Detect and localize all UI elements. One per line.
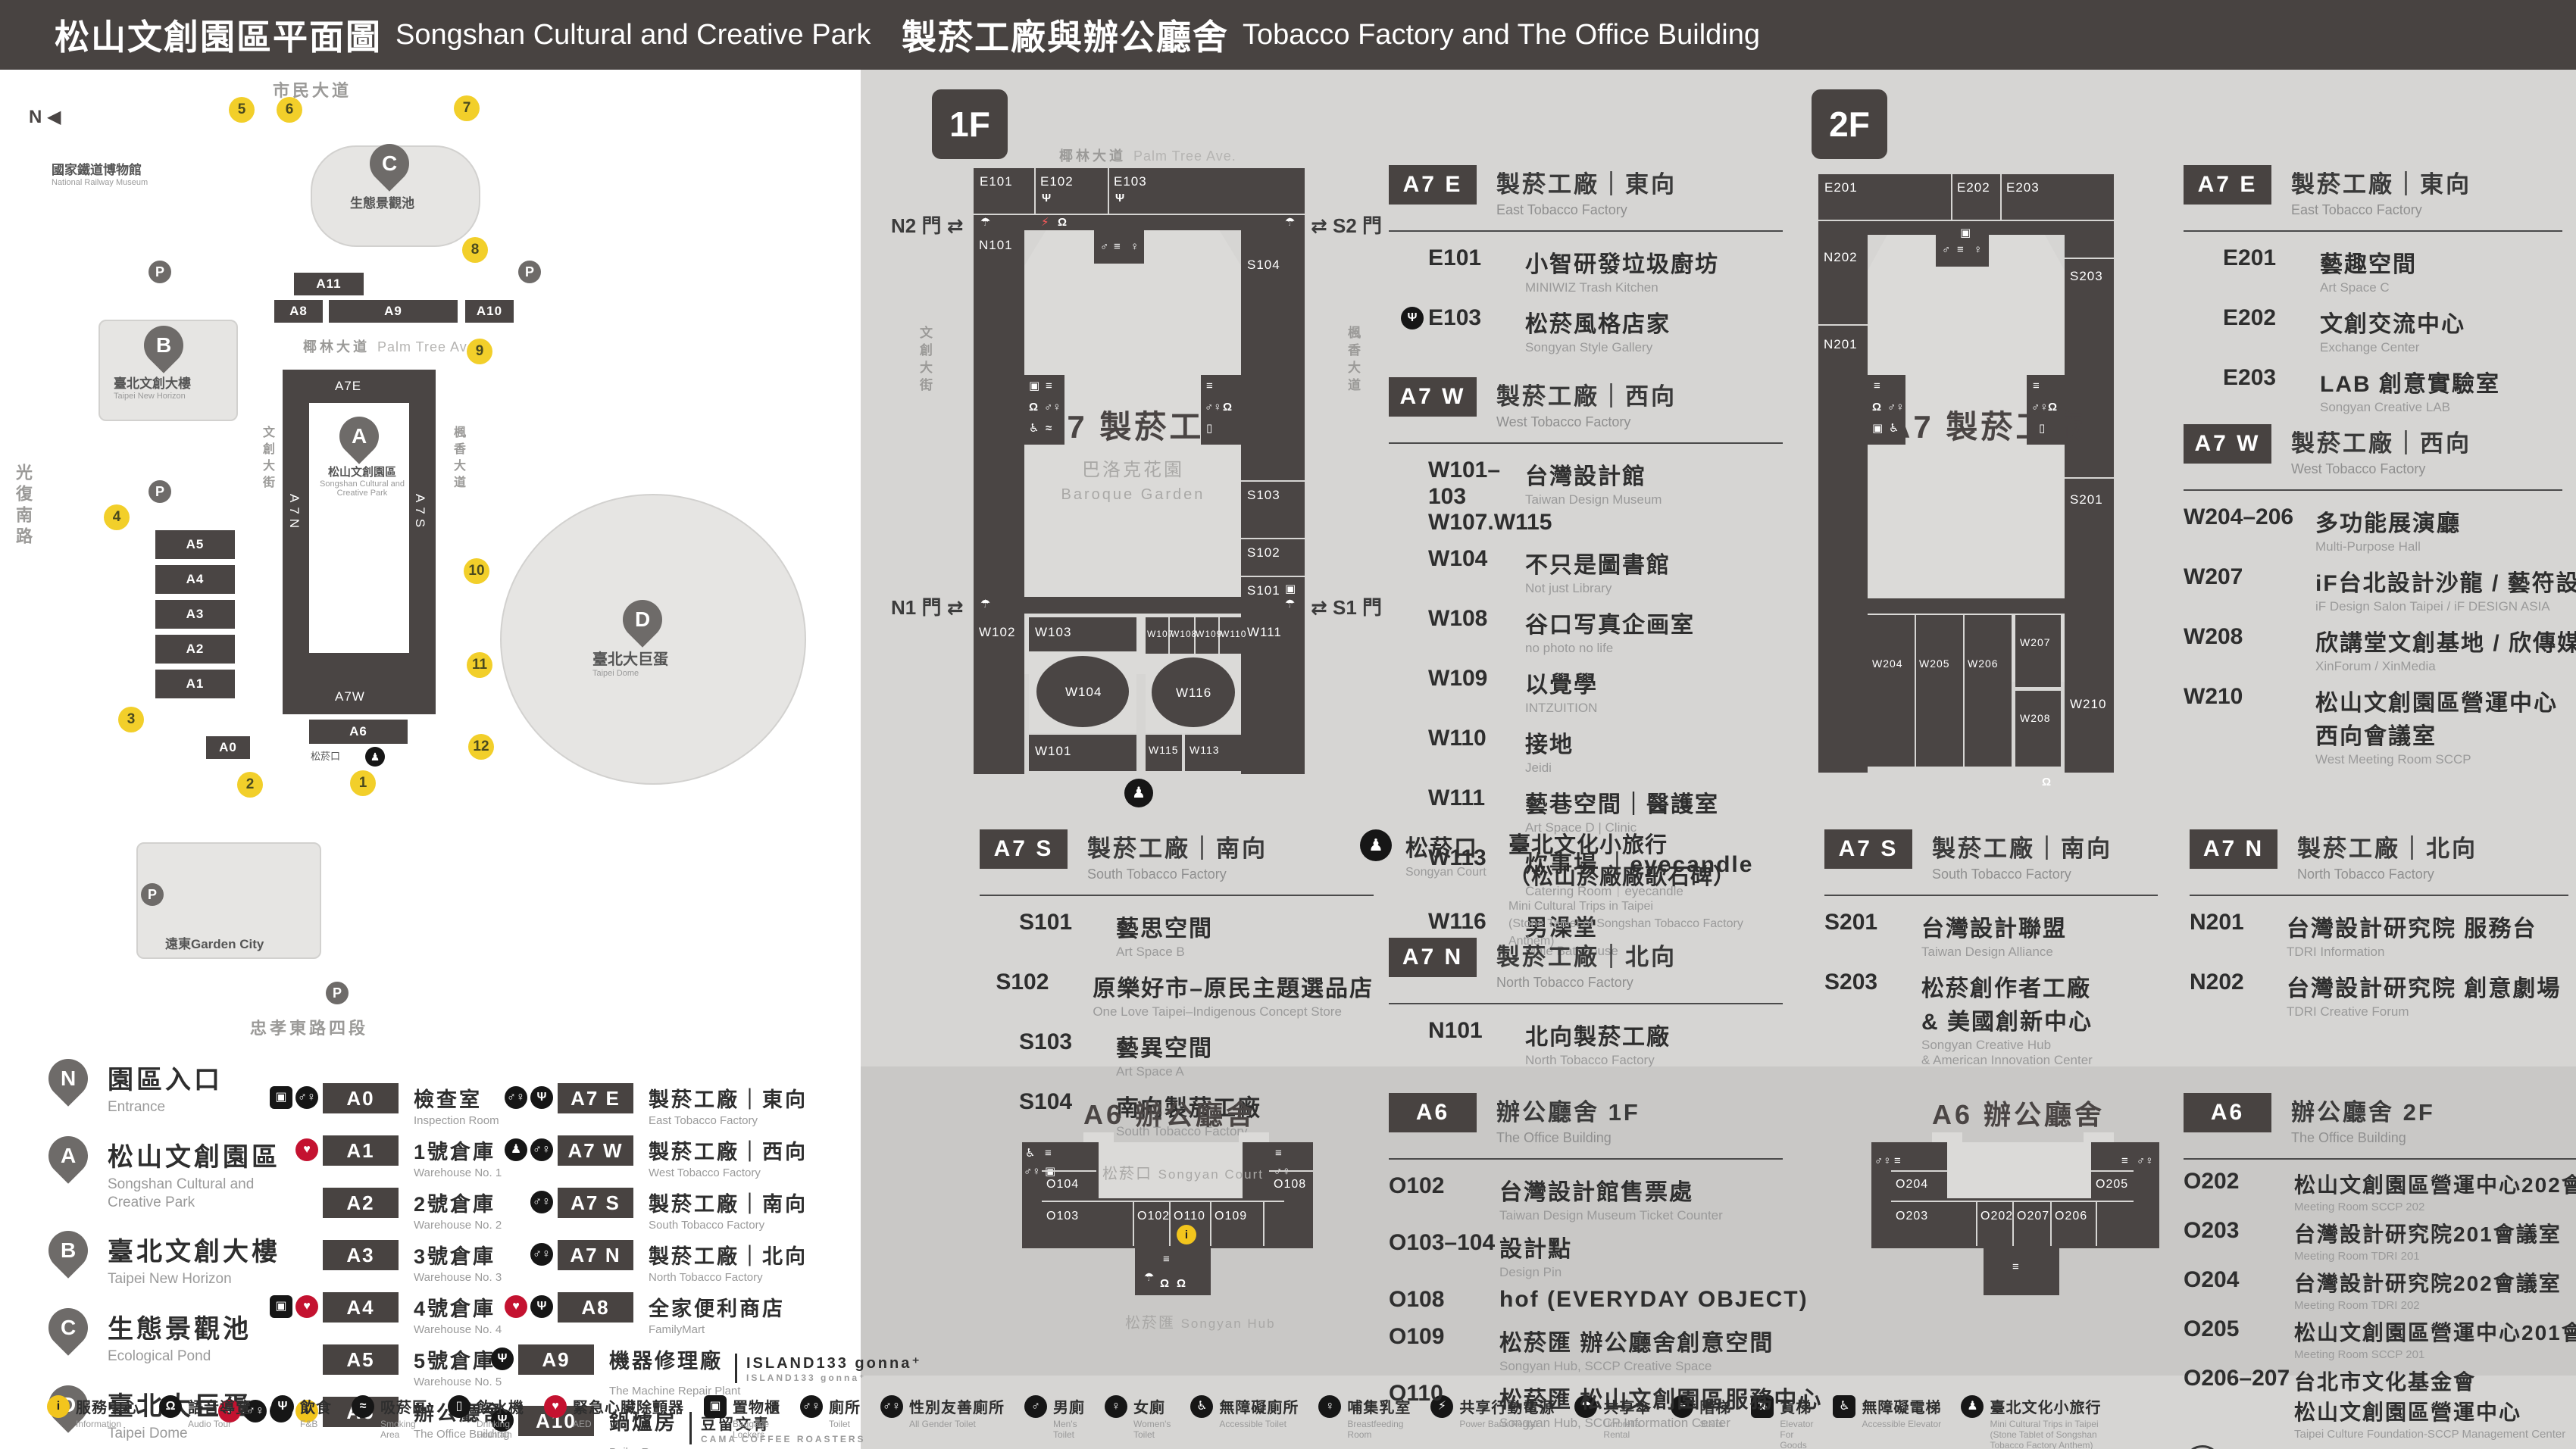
baggage-lockers-icon: ▣	[1029, 380, 1039, 392]
stairs-icon: ≡	[1163, 1254, 1170, 1265]
legend-building-row: ♥Ψ A8 全家便利商店 FamilyMart	[491, 1292, 855, 1336]
culture-trip-icon: ♟	[365, 747, 385, 767]
chip-a7s: A7 S	[980, 829, 1068, 869]
map-pin-b: B	[144, 326, 183, 365]
plan1-south-corridor	[974, 597, 1305, 614]
umbrella-icon: ☂	[980, 598, 990, 610]
legend-pin-icon: C	[40, 1300, 96, 1356]
taipei-new-horizon-label: 臺北文創大樓Taipei New Horizon	[114, 373, 191, 401]
room-row: E101 小智研發垃圾廚坊 MINIWIZ Trash Kitchen	[1389, 245, 1783, 295]
room-w104: W104	[1065, 685, 1102, 700]
facility-item: ♂ 男廁Men's Toilet	[1024, 1395, 1085, 1440]
legend-pin-icon: A	[40, 1128, 96, 1184]
stairs-icon: ≡	[1957, 244, 1964, 255]
floor1-plan: 椰林大道Palm Tree Ave. E101 E102 E103 Ψ Ψ ☂ …	[961, 151, 1385, 818]
floor2-plan: E201 E202 E203 N202 N201 S203 S201 ♂ ≡ ♀…	[1815, 151, 2193, 818]
a6-2f-plan-title: A6 辦公廳舍	[1932, 1093, 2105, 1132]
room-row: Ψ E103 松菸風格店家 Songyan Style Gallery	[1389, 305, 1783, 355]
a6-2f-stem	[1984, 1248, 2059, 1295]
room-row: O206–207 台北市文化基金會松山文創園區營運中心 Taipei Cultu…	[2184, 1366, 2576, 1441]
all-gender-toilet-icon: ♂♀	[880, 1395, 903, 1418]
toilet-icon: ♂♀	[1874, 1155, 1892, 1166]
building-code-chip: A8	[558, 1292, 633, 1323]
map-pin-a: A	[339, 417, 379, 456]
floor-badge-2f: 2F	[1812, 89, 1887, 159]
toilet-icon: ♂♀	[1887, 401, 1905, 413]
room-e203: E203	[2006, 180, 2040, 195]
legend-building-row: ▣♂♀ A0 檢查室 Inspection Room	[256, 1083, 506, 1127]
street-palm-ave: 椰林大道Palm Tree Ave.	[303, 336, 480, 356]
legend-building-row: A2 2號倉庫 Warehouse No. 2	[256, 1188, 506, 1232]
legend-building-row: A5 5號倉庫 Warehouse No. 5	[256, 1344, 506, 1388]
gate-6: 6	[277, 97, 302, 123]
room-row: W204–206 多功能展演廳 Multi-Purpose Hall	[2184, 504, 2562, 554]
room-row: W104 不只是圖書館 Not just Library	[1389, 546, 1783, 596]
stairs-icon: ≡	[2121, 1155, 2128, 1166]
map-building-a10: A10	[465, 300, 514, 323]
park-map: N ◀ 國家鐵道博物館National Railway Museum 市民大道 …	[0, 70, 861, 1053]
map-building-a5: A5	[155, 530, 235, 559]
umbrella-icon: ☂	[1285, 217, 1295, 228]
building-code-chip: A0	[323, 1083, 399, 1113]
map-building-a2: A2	[155, 635, 235, 664]
taipei-dome	[500, 494, 806, 785]
gate-3: 3	[118, 707, 144, 732]
facility-item: Ω 語音導覽Audio Tour	[159, 1395, 252, 1429]
right-header-title-en: Tobacco Factory and The Office Building	[1243, 19, 1760, 52]
accessible-toilet-icon: ♿	[1029, 423, 1039, 434]
a6-court-label: 松菸口 Songyan Court	[1102, 1161, 1264, 1183]
right-header: 製菸工廠與辦公廳舍 Tobacco Factory and The Office…	[871, 0, 2576, 70]
audio-tour-icon: Ω	[159, 1395, 182, 1418]
parking-icon: P	[148, 261, 171, 283]
stairs-icon: ≡	[1206, 380, 1213, 392]
street-zhongxiao-rd: 忠孝東路四段	[250, 1015, 368, 1039]
street-guangfu-rd: 光復南路	[11, 464, 35, 548]
room-row: W210 松山文創園區營運中心西向會議室 West Meeting Room S…	[2184, 684, 2562, 767]
umbrella-icon: ☂	[1144, 1272, 1154, 1283]
room-o102: O102	[1137, 1210, 1170, 1223]
room-w111: W111	[1247, 625, 1282, 640]
breastfeeding-room-icon: ♀	[1318, 1395, 1341, 1418]
chip-a7w: A7 W	[1389, 377, 1477, 417]
chip-a7n-2f: A7 N	[2190, 829, 2277, 869]
room-s201: S201	[2070, 492, 2103, 507]
room-row: O110 松菸匯 松山文創園區服務中心Songyan Hub, SCCP Inf…	[1389, 1381, 1783, 1431]
gate-1: 1	[350, 770, 376, 796]
building-code-chip: A7 N	[558, 1240, 633, 1270]
room-w206: W206	[1968, 657, 1999, 670]
audio-tour-icon: Ω	[1872, 401, 1881, 413]
plan2-w204-206-block	[1868, 615, 2012, 767]
a6-1f-plan-title: A6 辦公廳舍	[1083, 1093, 1256, 1132]
room-o108: O108	[1274, 1178, 1306, 1191]
a6-hub-label: 松菸匯 Songyan Hub	[1125, 1310, 1276, 1332]
room-w205: W205	[1919, 657, 1950, 670]
mens-toilet-icon: ♂	[1942, 244, 1950, 255]
facility-item: ♿ 無障礙電梯Accessible Elevator	[1833, 1395, 1941, 1429]
baggage-lockers-icon: ▣	[1285, 583, 1296, 595]
room-o109: O109	[1215, 1210, 1247, 1223]
plan1-maple-ave: 楓香大道	[1343, 326, 1362, 395]
building-code-chip: A7 E	[558, 1083, 633, 1113]
building-code-chip: A1	[323, 1135, 399, 1166]
room-row: N101 北向製菸工廠North Tobacco Factory	[1389, 1018, 1783, 1068]
room-w108: W108	[1171, 629, 1197, 639]
umbrella-icon: ☂	[1285, 598, 1295, 610]
map-pin-d: D	[623, 600, 662, 639]
baggage-lockers-icon: ▣	[270, 1086, 292, 1109]
womens-toilet-icon: ♀	[1105, 1395, 1127, 1418]
left-header-title-zh: 松山文創園區平面圖	[55, 10, 382, 60]
street-cultural-blvd: 文創大街	[258, 426, 276, 492]
building-code-chip: A4	[323, 1292, 399, 1323]
room-o207: O207	[2017, 1210, 2049, 1223]
toilet-icon: ♂♀	[295, 1086, 318, 1109]
taipei-dome-label: 臺北大巨蛋Taipei Dome	[592, 647, 668, 678]
food-beverage-icon: Ψ	[271, 1395, 294, 1418]
room-row: O102 台灣設計館售票處Taiwan Design Museum Ticket…	[1389, 1173, 1783, 1223]
toilet-icon: ♂♀	[2137, 1155, 2154, 1166]
toilet-icon: ♂♀	[1205, 401, 1222, 413]
power-bank-icon: ⚡	[1041, 217, 1049, 228]
accessible-toilet-icon: ♿	[1190, 1395, 1213, 1418]
section-a6-1f: A6 辦公廳舍 1FThe Office Building O102 台灣設計館…	[1389, 1093, 1783, 1438]
womens-toilet-icon: ♀	[1130, 241, 1139, 252]
map-label-a7e: A7E	[335, 379, 361, 394]
room-row: O204 台灣設計研究院202會議室 Meeting Room TDRI 202	[2184, 1267, 2576, 1312]
chip-a7s-2f: A7 S	[1824, 829, 1912, 869]
parking-icon: P	[141, 883, 164, 906]
facility-item: ♥ 緊急心臟除顫器AED	[544, 1395, 684, 1429]
map-label-songyan-court: 松菸口	[311, 748, 340, 763]
gate-n1: N1 門 ⇄	[891, 592, 964, 620]
mens-toilet-icon: ♂	[1024, 1395, 1047, 1418]
room-row: O205 松山文創園區營運中心201會議室 Meeting Room SCCP …	[2184, 1316, 2576, 1361]
room-s203: S203	[2070, 269, 2103, 284]
stairs-icon: ≡	[1046, 380, 1052, 392]
stairs-icon: ≡	[2033, 380, 2040, 392]
floor-badge-1f: 1F	[932, 89, 1008, 159]
room-w115: W115	[1149, 744, 1179, 756]
room-e103: E103	[1114, 174, 1147, 189]
room-row: W208 欣講堂文創基地 / 欣傳媒 XinForum / XinMedia	[2184, 624, 2562, 674]
left-header: 松山文創園區平面圖 Songshan Cultural and Creative…	[0, 0, 915, 70]
room-o104: O104	[1046, 1178, 1079, 1191]
toilet-icon: ♂♀	[530, 1191, 553, 1213]
chip-a7w-2f: A7 W	[2184, 424, 2271, 464]
gate-n2: N2 門 ⇄	[891, 211, 964, 239]
gate-s1: ⇄ S1 門	[1311, 592, 1382, 620]
room-o103: O103	[1046, 1210, 1079, 1223]
baggage-lockers-icon: ▣	[704, 1395, 727, 1418]
legend-building-row: ♟♂♀ A7 W 製菸工廠｜西向 West Tobacco Factory	[491, 1135, 855, 1179]
toilet-icon: ♂♀	[1044, 401, 1061, 413]
facility-item: ♟ 臺北文化小旅行Mini Cultural Trips in Taipei (…	[1961, 1395, 2101, 1449]
building-code-chip: A3	[323, 1240, 399, 1270]
audio-tour-icon: Ω	[1223, 401, 1232, 413]
stairs-icon: ≡	[1045, 1148, 1052, 1159]
audio-tour-icon: Ω	[1160, 1278, 1169, 1289]
map-building-a6: A6	[309, 720, 408, 744]
room-n101: N101	[979, 238, 1013, 253]
drinking-fountain-icon: ▯	[448, 1395, 470, 1418]
gate-5: 5	[229, 97, 255, 123]
stairs-icon: ≡	[1275, 1148, 1282, 1159]
stairs-icon: ≡	[1874, 380, 1880, 392]
legend-building-row: A3 3號倉庫 Warehouse No. 3	[256, 1240, 506, 1284]
room-w102: W102	[979, 625, 1015, 640]
room-e102: E102	[1040, 174, 1074, 189]
section-songyan-court: ♟ 松菸口Songyan Court 臺北文化小旅行（松山菸廠廠歌石碑） Min…	[1360, 829, 1784, 951]
chip-a7e-2f: A7 E	[2184, 165, 2271, 205]
building-code-chip: A9	[518, 1344, 594, 1375]
room-row: S203 松菸創作者工廠& 美國創新中心 Songyan Creative Hu…	[1824, 970, 2158, 1068]
room-w207: W207	[2020, 636, 2051, 648]
plan1-garden-label: 巴洛克花園Baroque Garden	[1052, 458, 1215, 505]
room-o205: O205	[2096, 1178, 2128, 1191]
audio-tour-icon: Ω	[2048, 401, 2057, 413]
room-s104: S104	[1247, 258, 1280, 273]
room-row: O203 台灣設計研究院201會議室 Meeting Room TDRI 201	[2184, 1218, 2576, 1263]
room-n202: N202	[1824, 250, 1858, 265]
facility-item: ♿ 無障礙廁所Accessible Toilet	[1190, 1395, 1299, 1429]
map-label-a7w: A7W	[335, 689, 365, 704]
plan1-north-corridor	[974, 215, 1305, 230]
room-e202: E202	[1957, 180, 1990, 195]
toilet-icon: ♂♀	[530, 1138, 553, 1161]
toilet-icon: ♂♀	[800, 1395, 823, 1418]
gate-9: 9	[467, 339, 492, 364]
legend-building-row: ♂♀ A7 N 製菸工廠｜北向 North Tobacco Factory	[491, 1240, 855, 1284]
information-icon: i	[47, 1395, 70, 1418]
map-building-a9: A9	[329, 300, 458, 323]
room-w208: W208	[2020, 712, 2051, 724]
building-code-chip: A5	[323, 1344, 399, 1375]
room-row-o302: 3F O302 松山文創園區營運中心301會議室 Meeting Room SC…	[2184, 1445, 2576, 1449]
culture-trip-icon: ♟	[1961, 1395, 1984, 1418]
room-row: S201 台灣設計聯盟 Taiwan Design Alliance	[1824, 910, 2158, 960]
legend-building-row: ▣♥ A4 4號倉庫 Warehouse No. 4	[256, 1292, 506, 1336]
room-o203: O203	[1896, 1210, 1928, 1223]
facility-item: Ψ 飲食F&B	[271, 1395, 332, 1429]
room-row: O103–104 設計點Design Pin	[1389, 1230, 1783, 1280]
gate-8: 8	[462, 237, 488, 263]
audio-tour-icon: Ω	[2042, 776, 2051, 788]
food-beverage-icon: Ψ	[1042, 192, 1051, 204]
room-row: W101–103W107.W115 台灣設計館 Taiwan Design Mu…	[1389, 457, 1783, 536]
toilet-icon: ♂♀	[530, 1243, 553, 1266]
street-maple-ave: 楓香大道	[449, 426, 467, 492]
songyan-court-icon: ♟	[1124, 779, 1153, 807]
food-beverage-icon: Ψ	[530, 1086, 553, 1109]
room-n201: N201	[1824, 337, 1858, 352]
map-label-a7s: A7S	[412, 494, 427, 532]
drinking-fountain-icon: ▯	[1206, 423, 1212, 434]
culture-trip-icon: ♟	[505, 1138, 527, 1161]
facility-item: ▯ 飲水機Drinking Fountain	[448, 1395, 524, 1440]
gate-2: 2	[237, 772, 263, 798]
toilet-icon: ♂♀	[1024, 1166, 1041, 1177]
gate-10: 10	[464, 558, 489, 584]
plan2-north-wing	[1818, 235, 1868, 773]
room-w208-block	[2015, 691, 2061, 767]
floor-badge-3f: 3F	[2184, 1445, 2221, 1449]
parking-icon: P	[326, 982, 349, 1004]
legend-building-row: ♂♀Ψ A7 E 製菸工廠｜東向 East Tobacco Factory	[491, 1083, 855, 1127]
facility-item: ♂♀ 性別友善廁所All Gender Toilet	[880, 1395, 1005, 1429]
room-s101: S101	[1247, 583, 1280, 598]
accessible-toilet-icon: ♿	[1889, 423, 1899, 434]
audio-tour-icon: Ω	[1029, 401, 1038, 413]
facility-item: ♀ 女廁Women's Toilet	[1105, 1395, 1171, 1440]
room-row: W111 藝巷空間｜醫護室 Art Space D | Clinic	[1389, 785, 1783, 835]
food-beverage-icon: Ψ	[491, 1348, 514, 1370]
womens-toilet-icon: ♀	[1974, 244, 1982, 255]
gate-7: 7	[454, 95, 480, 121]
section-2f-a7w: A7 W 製菸工廠｜西向West Tobacco Factory W204–20…	[2184, 424, 2562, 777]
room-e201: E201	[1824, 180, 1858, 195]
legend-building-row: ♂♀ A7 S 製菸工廠｜南向 South Tobacco Factory	[491, 1188, 855, 1232]
food-beverage-icon: Ψ	[1115, 192, 1124, 204]
section-a6-2f: A6 辦公廳舍 2FThe Office Building O202 松山文創園…	[2184, 1093, 2576, 1449]
drinking-fountain-icon: ▯	[2039, 423, 2045, 434]
toilet-icon: ♂♀	[2031, 401, 2049, 413]
stairs-icon: ≡	[1114, 241, 1121, 252]
building-code-chip: A7 W	[558, 1135, 633, 1166]
map-building-a3: A3	[155, 600, 235, 629]
section-1f-a7e: A7 E 製菸工廠｜東向East Tobacco Factory E101 小智…	[1389, 165, 1783, 365]
map-building-a11: A11	[294, 273, 364, 295]
legend-building-row: Ψ A9 機器修理廠ISLAND133 gonna⁺ISLAND133 gonn…	[491, 1344, 855, 1397]
room-row: O109 松菸匯 辦公廳舍創意空間Songyan Hub, SCCP Creat…	[1389, 1324, 1783, 1374]
room-w207-block	[2015, 615, 2061, 687]
room-row: E201 藝趣空間Art Space C	[2184, 245, 2562, 295]
map-building-a1: A1	[155, 670, 235, 698]
umbrella-icon: ☂	[980, 217, 990, 228]
audio-tour-icon: Ω	[1177, 1278, 1186, 1289]
room-row: N202 台灣設計研究院 創意劇場TDRI Creative Forum	[2190, 970, 2568, 1020]
room-e101: E101	[980, 174, 1013, 189]
a6-2f-plan: A6 辦公廳舍 ♂♀ ≡ ≡ ♂♀ O204 O205 O203 O202 O2…	[1864, 1079, 2190, 1375]
room-row: E202 文創交流中心Exchange Center	[2184, 305, 2562, 355]
parking-icon: P	[148, 480, 171, 503]
room-s102: S102	[1247, 545, 1280, 561]
map-label-a7n: A7N	[286, 494, 302, 532]
section-2f-a7n: A7 N 製菸工廠｜北向North Tobacco Factory N201 台…	[2190, 829, 2568, 1029]
pond-label: 生態景觀池	[350, 192, 414, 211]
map-building-a0: A0	[206, 736, 250, 759]
room-w116: W116	[1176, 685, 1211, 701]
toilet-icon: ♂♀	[505, 1086, 527, 1109]
section-2f-a7s: A7 S 製菸工廠｜南向South Tobacco Factory S201 台…	[1824, 829, 2158, 1078]
room-o110: O110	[1174, 1210, 1205, 1223]
parking-icon: P	[518, 261, 541, 283]
legend-building-row: ♥ A1 1號倉庫 Warehouse No. 1	[256, 1135, 506, 1179]
room-w103: W103	[1035, 625, 1071, 640]
plan2-south-corridor	[1818, 598, 2114, 614]
accessible-toilet-icon: ♿	[1025, 1148, 1035, 1159]
legend-pin-icon: N	[40, 1051, 96, 1107]
facility-item: ≈ 吸菸區Smoking Area	[352, 1395, 428, 1440]
gate-12: 12	[468, 734, 494, 760]
room-o206: O206	[2055, 1210, 2087, 1223]
smoking-area-icon: ≈	[352, 1395, 374, 1418]
building-code-chip: A2	[323, 1188, 399, 1218]
room-row: E203 LAB 創意實驗室Songyan Creative LAB	[2184, 365, 2562, 415]
gate-s2: ⇄ S2 門	[1311, 211, 1382, 239]
room-w101: W101	[1035, 744, 1071, 759]
baggage-lockers-icon: ▣	[270, 1295, 292, 1318]
map-building-a8: A8	[274, 300, 323, 323]
room-row: W207 iF台北設計沙龍 / 藝符設計 iF Design Salon Tai…	[2184, 564, 2562, 614]
chip-a7e: A7 E	[1389, 165, 1477, 205]
room-w204: W204	[1872, 657, 1903, 670]
north-arrow: N ◀	[29, 106, 61, 128]
room-o202: O202	[1980, 1210, 2013, 1223]
aed-icon: ♥	[295, 1138, 318, 1161]
baggage-lockers-icon: ▣	[1872, 423, 1883, 434]
aed-icon: ♥	[544, 1395, 567, 1418]
room-row: O202 松山文創園區營運中心202會議室 Meeting Room SCCP …	[2184, 1169, 2576, 1213]
map-label-park: 松山文創園區Songshan Cultural and Creative Par…	[317, 464, 408, 498]
right-header-title-zh: 製菸工廠與辦公廳舍	[902, 10, 1229, 60]
facility-item: i 服務中心Information	[47, 1395, 139, 1429]
a6-2f-courtyard	[1947, 1142, 2091, 1198]
audio-tour-icon: Ω	[1058, 217, 1067, 228]
room-row: S103 藝異空間Art Space A	[980, 1029, 1374, 1079]
room-w109: W109	[1196, 629, 1222, 639]
room-w113: W113	[1190, 744, 1220, 756]
room-row: S101 藝思空間Art Space B	[980, 910, 1374, 960]
building-code-chip: A7 S	[558, 1188, 633, 1218]
accessible-elevator-icon: ♿	[1833, 1395, 1855, 1418]
chip-a6-1f: A6	[1389, 1093, 1477, 1132]
information-icon: i	[1177, 1225, 1196, 1244]
stairs-icon: ≡	[2012, 1261, 2019, 1273]
gate-11: 11	[467, 652, 492, 678]
culture-trip-icon: ♟	[1360, 829, 1392, 861]
legend-buildings-b: ♂♀Ψ A7 E 製菸工廠｜東向 East Tobacco Factory ♟♂…	[491, 1083, 855, 1449]
room-w110: W110	[1221, 629, 1246, 639]
facility-item: ♂♀ 廁所Toilet	[800, 1395, 861, 1429]
room-row: O108 hof (EVERYDAY OBJECT)	[1389, 1287, 1783, 1317]
food-beverage-icon: Ψ	[530, 1295, 553, 1318]
a6-1f-plan: A6 辦公廳舍 松菸口 Songyan Court ♿ ♂♀ ≡ ▣ ≡ ♂♀ …	[1011, 1079, 1375, 1375]
aed-icon: ♥	[505, 1295, 527, 1318]
room-s103: S103	[1247, 488, 1280, 503]
smoking-area-icon: ≈	[1046, 423, 1052, 434]
room-w210: W210	[2070, 697, 2106, 712]
aed-icon: ♥	[295, 1295, 318, 1318]
garden-city-label: 遠東Garden City	[165, 933, 264, 952]
gate-4: 4	[104, 504, 130, 530]
floor-plan-poster: { "icon_glyphs":{"information":"i","audi…	[0, 0, 2576, 1449]
food-beverage-icon: Ψ	[1401, 307, 1424, 329]
legend-buildings-a: ▣♂♀ A0 檢查室 Inspection Room ♥ A1 1號倉庫 War…	[256, 1083, 506, 1449]
room-row: W110 接地 Jeidi	[1389, 726, 1783, 776]
room-row: S102 原樂好市–原民主題選品店One Love Taipei–Indigen…	[980, 970, 1374, 1020]
railway-museum-label: 國家鐵道博物館National Railway Museum	[52, 159, 148, 187]
plan1-cultural-blvd: 文創大街	[915, 326, 934, 395]
room-row: W108 谷口写真企画室 no photo no life	[1389, 606, 1783, 656]
chip-a6-2f: A6	[2184, 1093, 2271, 1132]
mens-toilet-icon: ♂	[1100, 241, 1108, 252]
map-pin-c: C	[370, 144, 409, 183]
room-row: N201 台灣設計研究院 服務台TDRI Information	[2190, 910, 2568, 960]
map-building-a4: A4	[155, 565, 235, 594]
room-o204: O204	[1896, 1178, 1928, 1191]
